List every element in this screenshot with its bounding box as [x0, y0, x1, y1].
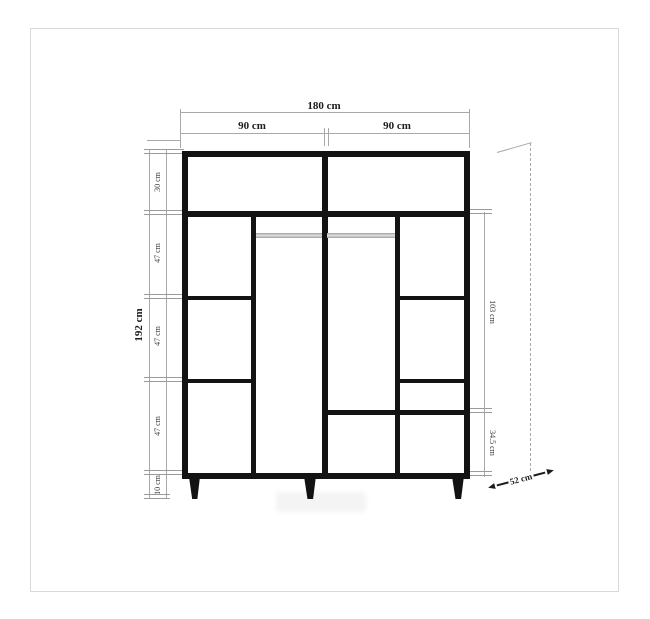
hanger-rod-left — [256, 233, 322, 238]
dimension-line-total-height — [149, 150, 150, 499]
dimension-line-total-width — [180, 112, 469, 113]
label-upper-shelf-height: 47 cm — [153, 231, 163, 275]
label-right-section-width: 90 cm — [357, 120, 437, 132]
tick-mark — [144, 470, 184, 475]
left-column-shelf-upper — [188, 296, 251, 300]
tick-mark — [144, 294, 184, 299]
center-divider — [322, 151, 328, 479]
tick-mark — [328, 128, 329, 146]
depth-projection-dashed-line — [530, 143, 531, 471]
tick-mark — [144, 149, 184, 154]
left-column-shelf-lower — [188, 379, 251, 383]
dimension-dash — [496, 481, 508, 486]
label-left-section-width: 90 cm — [212, 120, 292, 132]
lower-wide-shelf — [327, 410, 464, 415]
right-inner-divider — [395, 215, 400, 473]
wardrobe-left-edge — [182, 151, 188, 479]
watermark-ghost — [276, 492, 366, 512]
dimension-line-right-sections — [484, 212, 485, 477]
label-middle-shelf-height: 47 cm — [153, 314, 163, 358]
label-bottom-section-height: 34.5 cm — [487, 421, 497, 465]
label-hanging-section-height: 103 cm — [487, 290, 497, 334]
hanger-rod-right — [327, 233, 395, 238]
wardrobe-diagram: 180 cm 90 cm 90 cm 192 cm 30 cm 47 cm 47… — [0, 0, 650, 619]
tick-mark — [144, 377, 184, 382]
right-column-shelf-upper — [400, 296, 464, 300]
left-inner-divider — [251, 215, 256, 473]
right-column-shelf-lower — [400, 379, 464, 383]
dimension-dash — [534, 471, 546, 476]
label-lower-shelf-height: 47 cm — [153, 404, 163, 448]
top-shelf — [188, 211, 464, 217]
extension-line-right — [469, 109, 470, 148]
label-top-shelf-height: 30 cm — [153, 160, 163, 204]
wardrobe-right-edge — [464, 151, 470, 479]
extension-line-left — [180, 109, 181, 148]
arrow-left-icon — [487, 483, 495, 491]
label-depth: 52 cm — [509, 471, 534, 487]
tick-mark — [144, 210, 184, 215]
dimension-line-height-segments — [166, 150, 167, 499]
arrow-right-icon — [547, 467, 555, 475]
label-total-height: 192 cm — [133, 295, 147, 355]
extension-line-top-left — [147, 140, 181, 141]
tick-mark — [324, 128, 325, 146]
label-total-width: 180 cm — [284, 100, 364, 112]
label-leg-height: 10 cm — [153, 463, 163, 507]
